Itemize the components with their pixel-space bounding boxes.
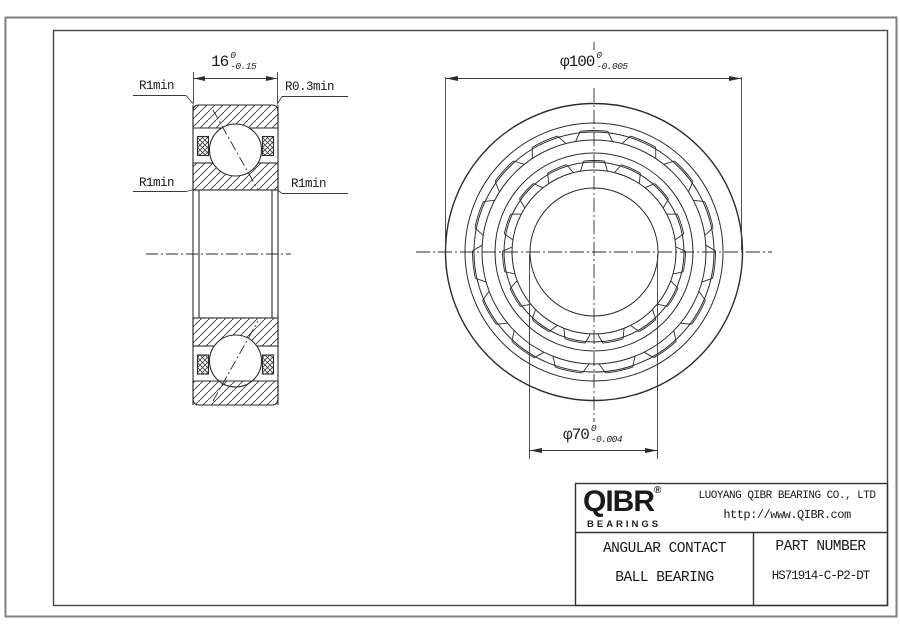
company-logo: QIBR® BEARINGS — [583, 487, 661, 530]
od-dimension-lines — [446, 76, 742, 250]
logo-subtext: BEARINGS — [587, 519, 661, 530]
od-dimension-text: φ100 0 -0.005 — [560, 54, 628, 73]
cage-section-top-left — [198, 137, 209, 156]
outer-ring-bottom-section — [193, 381, 278, 405]
part-number-label: PART NUMBER — [754, 539, 887, 555]
drawing-sheet: R1min R0.3min R1min R1min 16 0 -0.15 φ10… — [0, 0, 900, 636]
cage-section-top-right — [263, 137, 274, 156]
company-name: LUOYANG QIBR BEARING CO., LTD — [692, 490, 882, 502]
part-number-value: HS71914-C-P2-DT — [754, 569, 887, 583]
width-dimension-text: 16 0 -0.15 — [211, 54, 256, 73]
bore-dimension-text: φ70 0 -0.004 — [563, 427, 622, 446]
od-dimension-tolerance: 0 -0.005 — [596, 51, 627, 73]
logo-text: QIBR — [583, 485, 654, 518]
product-type-line1: ANGULAR CONTACT — [576, 541, 753, 557]
width-dimension-value: 16 — [211, 54, 228, 72]
bore-dimension-tolerance: 0 -0.004 — [591, 424, 622, 446]
cage-section-bottom-left — [198, 355, 209, 374]
fillet-label-top-left: R1min — [139, 79, 174, 93]
od-dimension-value: φ100 — [560, 54, 594, 72]
fillet-label-mid-left: R1min — [139, 176, 174, 190]
width-dimension-tolerance: 0 -0.15 — [230, 51, 256, 73]
bore-dimension-value: φ70 — [563, 427, 589, 445]
product-type-line2: BALL BEARING — [576, 570, 753, 586]
front-view — [416, 42, 772, 459]
outer-frame — [6, 18, 897, 617]
company-website: http://www.QIBR.com — [692, 508, 882, 522]
width-dimension-lines — [194, 72, 278, 103]
section-view — [133, 72, 348, 405]
cage-section-bottom-right — [263, 355, 274, 374]
registered-trademark-icon: ® — [654, 485, 661, 496]
fillet-label-top-right: R0.3min — [285, 80, 334, 94]
fillet-label-mid-right: R1min — [291, 177, 326, 191]
